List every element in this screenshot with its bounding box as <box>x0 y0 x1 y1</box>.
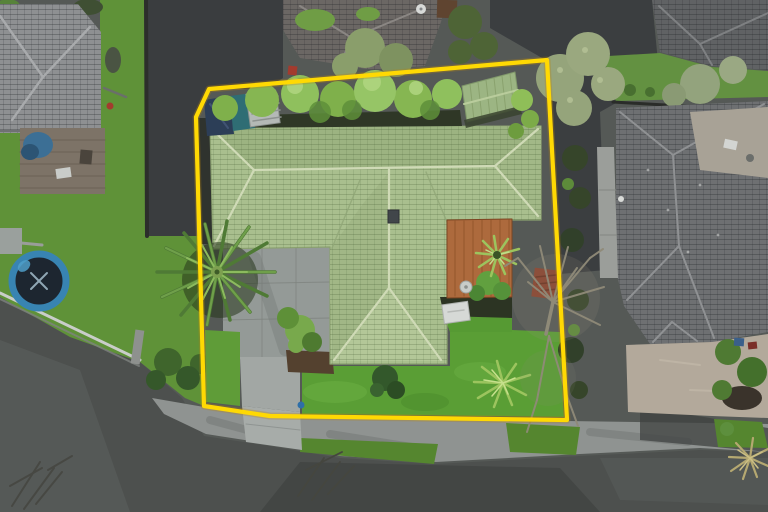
lawn-dark-patch <box>401 393 449 411</box>
bright-shrub-right-b <box>521 110 539 128</box>
tree-row-highlights <box>409 81 423 95</box>
shrubs-right-top <box>645 87 655 97</box>
roof-lichen-specks <box>699 184 702 187</box>
grass-blob-top-2 <box>356 7 380 21</box>
satellite-dish-center <box>420 8 423 11</box>
roof-lichen-specks <box>667 209 670 212</box>
garden-item-red <box>748 342 758 350</box>
courtyard-bush-b <box>277 307 299 329</box>
roof-lichen-specks <box>647 169 650 172</box>
grass-blob-top-1 <box>295 9 335 31</box>
lawn-blue-toy <box>298 402 305 409</box>
olive-tree-right-c <box>662 83 686 107</box>
olive-tree-mid-specks <box>557 67 563 73</box>
olive-tree-mid-specks <box>567 97 573 103</box>
house-roof-vent <box>388 210 399 223</box>
property-aerial-photo <box>0 0 768 512</box>
small-red-object <box>288 66 298 76</box>
lawn-shrub-b <box>387 381 405 399</box>
road-worn-patch-right <box>600 458 768 505</box>
roof-lichen-specks <box>717 234 720 237</box>
lawn-shrub-c <box>370 383 384 397</box>
clutter-red-item <box>107 103 114 110</box>
courtyard-bush-a <box>288 337 304 353</box>
tussock-grass <box>729 457 750 458</box>
right-garden-bushes-a <box>712 380 732 400</box>
tree-row-shadows <box>420 100 440 120</box>
gravel-clutter-dark <box>746 154 754 162</box>
yucca-center <box>493 251 501 259</box>
dark-shrubs-left-b <box>146 370 166 390</box>
left-yard-grass-strip <box>100 0 148 140</box>
right-strip-garden-a <box>562 145 588 171</box>
right-garden-bushes-b <box>737 357 767 387</box>
deck-table-center <box>464 285 468 289</box>
berm-grass-middle <box>506 423 580 455</box>
olive-tree-mid-specks <box>597 77 603 83</box>
shrubs-right-top <box>624 84 636 96</box>
olive-tree-mid-a <box>556 90 592 126</box>
bright-shrub-right-a <box>511 89 533 111</box>
lawn-left-strip <box>205 330 240 406</box>
tree-row-shadows <box>309 101 331 123</box>
right-strip-garden-a <box>569 187 591 209</box>
right-strip-garden-b <box>560 228 584 252</box>
roof-vent-white <box>618 196 624 202</box>
neighbor-left-tarp-dark <box>21 144 39 160</box>
dark-shrubs-left-b <box>176 366 200 390</box>
tree-row-shadows <box>342 100 362 120</box>
tree-row-a <box>212 95 238 121</box>
aerial-photo-canvas <box>0 0 768 512</box>
mulch-garden-bed <box>286 350 334 374</box>
garden-item-blue <box>734 338 745 347</box>
lawn-light-patch-1 <box>303 381 367 403</box>
deck-hedge-b <box>493 282 511 300</box>
olive-tree-mid-specks <box>582 47 588 53</box>
bright-shrub-right-c <box>508 123 524 139</box>
neighbor-left-deck-item-dark <box>79 150 92 165</box>
road-wet-patch-center <box>260 462 600 512</box>
dark-trees-top <box>470 32 498 60</box>
courtyard-bush-c <box>302 332 322 352</box>
garden-rocks <box>105 47 121 73</box>
green-tuft-right <box>720 422 734 436</box>
dark-trees-top <box>448 40 472 64</box>
roof-lichen-specks <box>687 251 690 254</box>
olive-tree-right-a <box>680 64 720 104</box>
palm-crown-center <box>215 270 220 275</box>
olive-tree-mid-b <box>591 67 625 101</box>
neighbor-left-deck-item-white <box>55 167 71 179</box>
dark-trees-top <box>448 5 482 39</box>
olive-tree-right-b <box>719 56 747 84</box>
heat-pump <box>442 301 470 323</box>
right-strip-garden-accents <box>562 178 574 190</box>
fence-left <box>146 0 147 236</box>
concrete-patch-left <box>0 228 22 254</box>
